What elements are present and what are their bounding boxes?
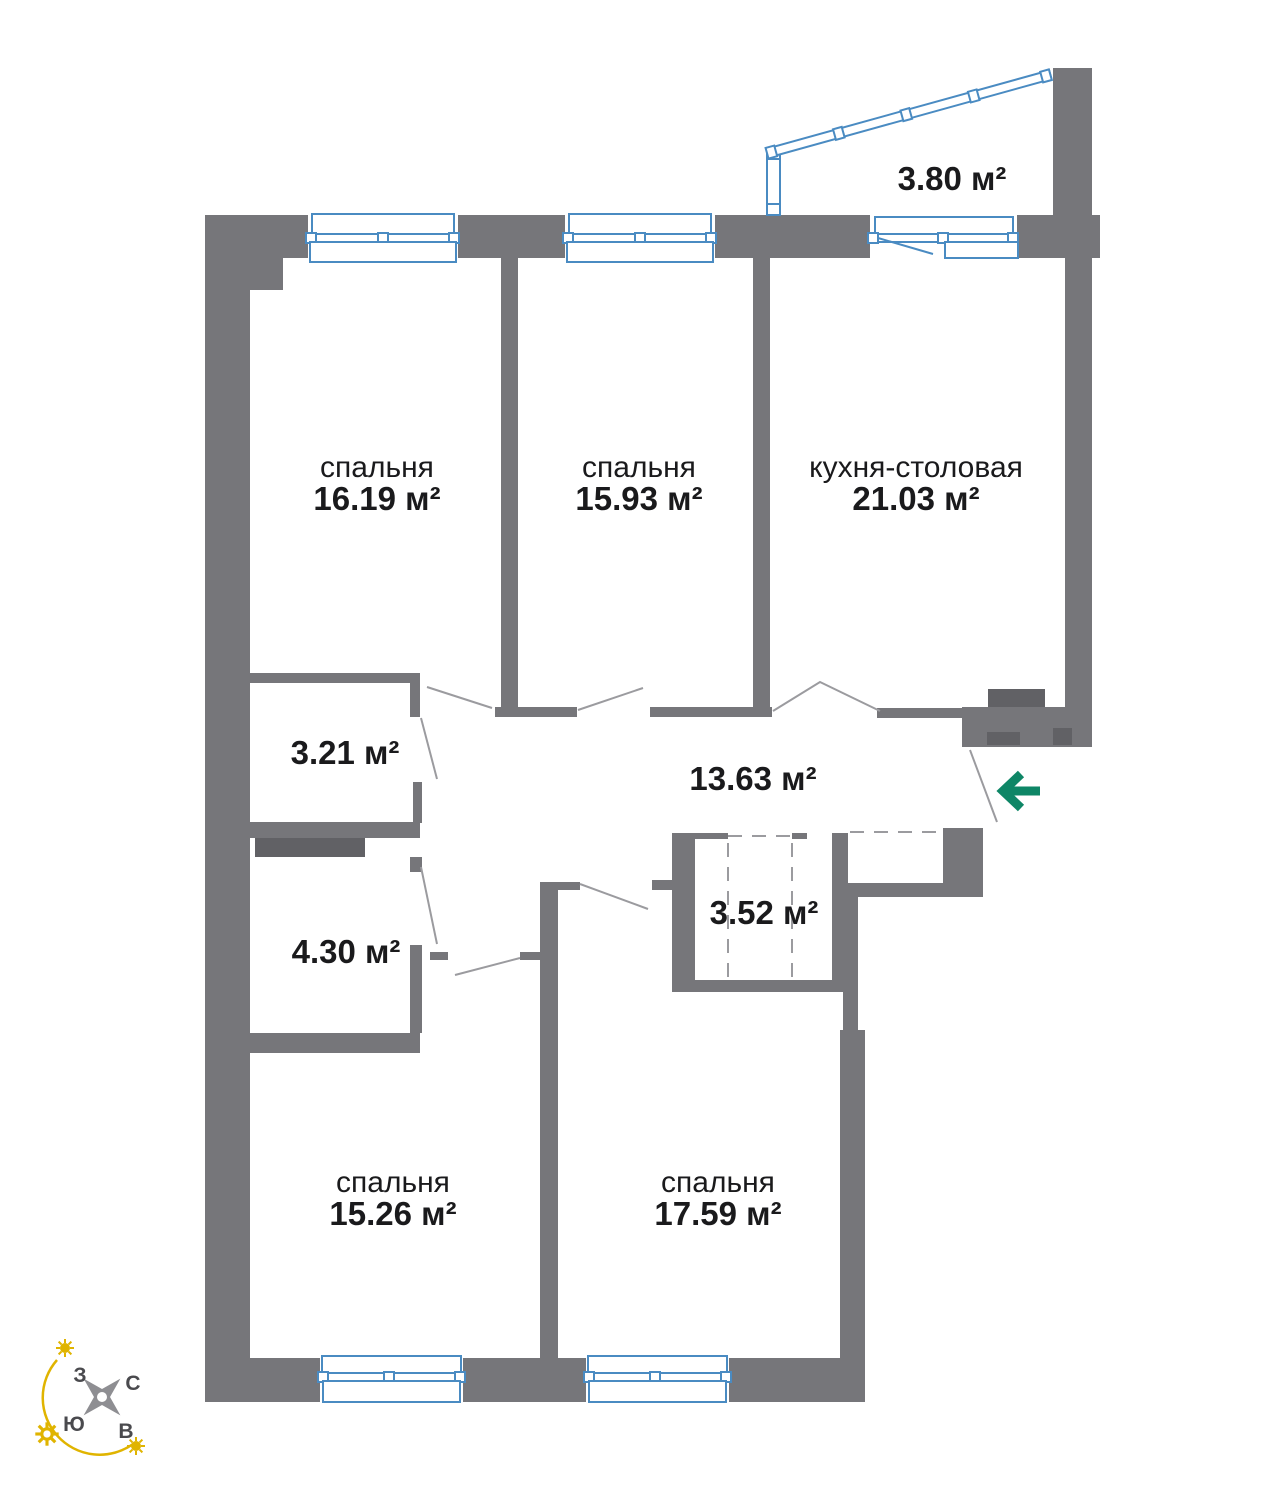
wall-segment [652, 880, 675, 890]
sun-icon [35, 1422, 58, 1445]
wall-segment [558, 882, 580, 890]
room-label-kitchen-area: 21.03 м² [852, 480, 979, 517]
wall-segment [962, 707, 1092, 747]
room-labels: спальня 16.19 м² спальня 15.93 м² кухня-… [291, 160, 1023, 1232]
door-bathroom-1 [421, 718, 437, 779]
room-label-bathroom-1-area: 3.21 м² [291, 734, 400, 771]
balcony-door-window [868, 217, 1018, 258]
compass-south: Ю [63, 1413, 85, 1436]
compass-north: С [125, 1372, 140, 1395]
room-label-bedroom-1-area: 16.19 м² [313, 480, 440, 517]
door-bedroom-3 [455, 958, 520, 975]
wall-segment [250, 822, 420, 838]
wall-segment [792, 833, 807, 839]
wall-segment [495, 707, 577, 717]
wall-segment [250, 673, 420, 683]
wall-segment [410, 683, 420, 717]
entry-arrow-icon [1003, 774, 1040, 808]
wall-segment [672, 980, 848, 992]
door-bathroom-2 [421, 867, 437, 944]
door-kitchen [773, 682, 880, 711]
door-entry [970, 750, 997, 822]
wall-segment [877, 708, 963, 718]
room-label-bedroom-2-area: 15.93 м² [575, 480, 702, 517]
floor-plan: спальня 16.19 м² спальня 15.93 м² кухня-… [0, 0, 1271, 1495]
compass-star-center [97, 1392, 107, 1402]
wall-segment [501, 215, 518, 708]
wall-segment [205, 1358, 320, 1402]
window-bedroom-4 [584, 1356, 731, 1402]
door-bedroom-2 [578, 688, 643, 710]
duct-shaft [1053, 728, 1072, 745]
wall-segment [520, 952, 542, 960]
sun-icon [56, 1339, 74, 1357]
compass-rose: З С Ю В [35, 1339, 145, 1455]
door-bedroom-4 [580, 884, 648, 909]
wall-segment [729, 1358, 865, 1402]
duct-shaft [255, 838, 365, 857]
room-label-hallway-area: 13.63 м² [689, 760, 816, 797]
wall-segment [250, 1033, 420, 1053]
floor-plan-svg: спальня 16.19 м² спальня 15.93 м² кухня-… [0, 0, 1271, 1495]
wall-segment [650, 707, 772, 717]
wall-segment [410, 945, 422, 1033]
wall-segment [848, 883, 983, 897]
wall-segment [1065, 258, 1092, 747]
wall-segment [672, 833, 695, 987]
wall-segment [463, 1358, 586, 1402]
compass-west: З [73, 1364, 86, 1387]
duct-shaft [987, 732, 1020, 745]
compass-east: В [118, 1420, 133, 1443]
wall-segment [753, 215, 770, 712]
duct-shaft [988, 689, 1045, 707]
wall-segment [205, 215, 250, 1402]
wall-segment [540, 882, 558, 1358]
room-label-bedroom-4-area: 17.59 м² [654, 1195, 781, 1232]
wall-segment [410, 857, 422, 872]
room-label-bathroom-2-area: 4.30 м² [292, 933, 401, 970]
door-swings [421, 682, 997, 978]
wall-segment [843, 897, 858, 1030]
wall-segment [413, 782, 422, 823]
window-bedroom-2 [563, 214, 716, 262]
wall-segment [430, 952, 448, 960]
window-bedroom-3 [318, 1356, 465, 1402]
door-bedroom-1 [427, 687, 492, 708]
wall-segment [715, 215, 870, 258]
wall-segment [672, 833, 728, 839]
wall-segment [1053, 68, 1092, 258]
room-label-wardrobe-area: 3.52 м² [710, 894, 819, 931]
window-bedroom-1 [306, 214, 459, 262]
wall-segment [840, 1030, 865, 1358]
room-label-balcony-area: 3.80 м² [898, 160, 1007, 197]
room-label-bedroom-3-area: 15.26 м² [329, 1195, 456, 1232]
